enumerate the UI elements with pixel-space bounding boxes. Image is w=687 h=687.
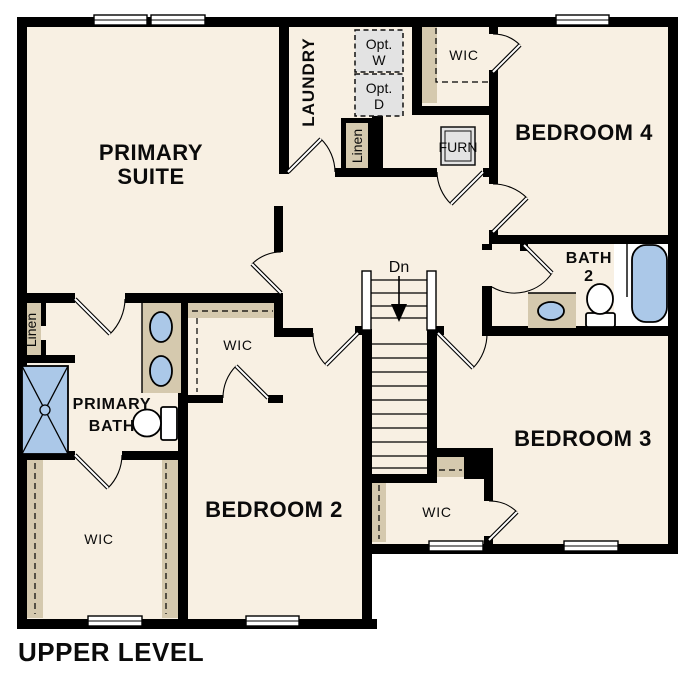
wall-bath2-top: [489, 235, 678, 244]
window-bedroom3-2: [564, 541, 618, 551]
wic-bedroom4-shelf: [422, 27, 437, 103]
bath2-toilet: [586, 284, 615, 327]
label-bedroom4: BEDROOM 4: [515, 120, 653, 145]
label-wic-primary: WIC: [84, 531, 114, 547]
primary-vanity: [142, 303, 181, 393]
wall-pbath-bottom-b: [122, 451, 182, 460]
window-primary-suite-1: [94, 15, 147, 25]
wall-bath2-left-a: [482, 244, 492, 250]
wic-primary-shelf-right: [162, 460, 178, 618]
wall-linen-bottom: [17, 355, 75, 363]
wall-stairs-bottom: [362, 474, 437, 483]
label-primary-suite-1: PRIMARY: [99, 140, 203, 165]
window-wic-primary: [88, 616, 142, 626]
wall-bed4-left-a: [489, 17, 498, 34]
wall-wic4-bottom: [412, 106, 498, 115]
wall-wic3-block: [464, 448, 493, 479]
wall-laundry-right: [412, 17, 422, 115]
label-opt-w-2: W: [372, 52, 386, 68]
wall-suite-pier: [274, 206, 283, 252]
label-wic-bedroom4: WIC: [449, 47, 479, 63]
wall-outer-bottom-left: [17, 619, 377, 629]
primary-vanity-sink-2: [150, 356, 172, 386]
wall-suite-right: [279, 17, 289, 174]
wall-linen-left-a: [41, 295, 46, 326]
window-bedroom2: [246, 616, 299, 626]
floor-plan-page: PRIMARY SUITE LAUNDRY Opt. W Opt. D WIC …: [0, 0, 687, 687]
wall-linenhall-left: [341, 118, 346, 170]
stairs-rail-right: [427, 271, 436, 330]
shower: [22, 366, 68, 454]
primary-vanity-sink-1: [150, 312, 172, 342]
wic-bedroom3-shelf-top: [437, 456, 464, 477]
label-linen-primary: Linen: [23, 313, 39, 347]
wall-suite-bottom-b: [125, 293, 283, 303]
label-bedroom3: BEDROOM 3: [514, 426, 652, 451]
label-bath2-1: BATH: [566, 250, 612, 267]
label-wic-bedroom3: WIC: [422, 504, 452, 520]
wall-bed4-left-b: [489, 70, 498, 184]
wall-outer-right: [668, 17, 678, 554]
label-primary-suite-2: SUITE: [117, 164, 184, 189]
window-bedroom3-1: [429, 541, 483, 551]
label-laundry: LAUNDRY: [299, 37, 318, 126]
wall-wic2-bottom-b: [268, 395, 283, 403]
floor-plan-drawing: PRIMARY SUITE LAUNDRY Opt. W Opt. D WIC …: [0, 0, 687, 687]
label-furn: FURN: [439, 139, 478, 155]
label-opt-d-2: D: [374, 96, 384, 112]
bathtub: [632, 245, 667, 322]
label-bath2-2: 2: [584, 268, 594, 285]
wall-wic3-top: [428, 448, 466, 457]
bath2-vanity-sink: [538, 302, 564, 320]
label-primary-bath-1: PRIMARY: [73, 396, 152, 413]
window-bedroom4: [556, 15, 609, 25]
label-linen-hall: Linen: [349, 129, 365, 163]
wall-wic2-bottom-a: [180, 395, 223, 403]
wall-outer-bottom-right: [367, 544, 678, 554]
wall-bed3-top: [487, 326, 678, 336]
wall-wic2-right: [274, 300, 283, 337]
label-stairs-dn: Dn: [389, 259, 409, 276]
label-wic-bedroom2: WIC: [223, 337, 253, 353]
shower-drain: [40, 405, 50, 415]
wall-furn-left: [372, 115, 383, 177]
wic-bedroom2-shelf: [188, 303, 275, 318]
bath2-vanity: [528, 293, 576, 328]
label-primary-bath-2: BATH: [89, 418, 135, 435]
wall-laundry-bottom: [335, 168, 437, 177]
plan-title: UPPER LEVEL: [18, 637, 204, 667]
stairs-rail-left: [362, 271, 371, 330]
label-opt-w-1: Opt.: [366, 36, 392, 52]
wall-stairs-right: [427, 329, 437, 482]
wall-wic3-right-a: [484, 477, 493, 501]
label-opt-d-1: Opt.: [366, 80, 392, 96]
wall-bed2-door: [283, 328, 313, 337]
label-bedroom2: BEDROOM 2: [205, 497, 343, 522]
window-primary-suite-2: [151, 15, 205, 25]
